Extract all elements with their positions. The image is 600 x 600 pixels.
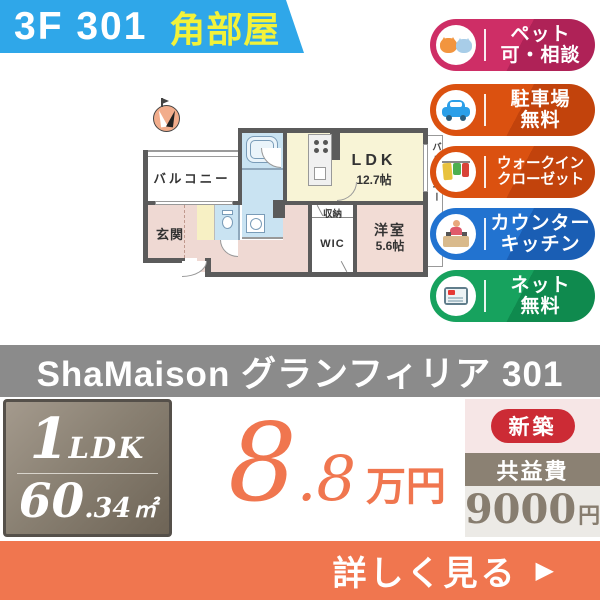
- new-build-band: 新築: [465, 399, 600, 453]
- room-hallway: [197, 240, 312, 272]
- corner-room-label: 角部屋: [169, 1, 280, 53]
- north-compass-icon: [153, 105, 180, 132]
- price-integer: 8: [228, 404, 297, 525]
- area-int: 60: [19, 478, 84, 525]
- car-icon: [436, 90, 476, 130]
- badge-text: カウンターキッチン: [486, 213, 595, 256]
- wall: [207, 272, 428, 277]
- price-decimal: .8: [297, 442, 356, 515]
- layout-row: 1 LDK: [30, 411, 146, 467]
- shoe-cabinet: [197, 205, 215, 240]
- property-title: ShaMaison グランフィリア 301: [37, 346, 564, 397]
- property-title-bar: ShaMaison グランフィリア 301: [0, 345, 600, 397]
- badge-counter-kitchen: カウンターキッチン: [430, 208, 595, 260]
- area-decimal: .34: [84, 493, 131, 524]
- floor-unit-banner: 3F 301 角部屋: [0, 0, 304, 53]
- area-row: 60 .34 ㎡: [19, 478, 156, 525]
- label-ldk-size: 12.7帖: [338, 171, 410, 188]
- wall: [353, 201, 357, 276]
- badge-walk-in-closet: ウォークインクローゼット: [430, 146, 595, 198]
- area-unit: ㎡: [133, 490, 156, 524]
- wall-pillar: [273, 200, 285, 218]
- badge-parking-free: 駐車場無料: [430, 84, 595, 136]
- hanging-clothes-icon: [436, 152, 476, 192]
- rent-price: 8 .8 万円: [212, 404, 462, 536]
- sliding-window: [423, 144, 428, 192]
- layout-number: 1: [30, 411, 69, 467]
- fee-label-band: 共益費: [465, 453, 600, 486]
- wall: [283, 128, 287, 205]
- sliding-window: [155, 201, 233, 205]
- washing-machine-icon: [246, 214, 265, 233]
- layout-type: LDK: [69, 431, 146, 465]
- floor-unit-label: 3F 301: [14, 5, 147, 49]
- label-ldk: LDK: [338, 152, 410, 170]
- dog-cat-icon: [436, 25, 476, 65]
- new-build-badge: 新築: [491, 409, 575, 443]
- badge-pets-ok: ペット可・相談: [430, 19, 595, 71]
- label-wic: WIC: [312, 238, 353, 250]
- stove-burners-icon: [314, 140, 319, 145]
- label-balcony: バルコニー: [148, 168, 236, 187]
- wall: [238, 128, 242, 205]
- label-entrance: 玄関: [148, 224, 192, 243]
- badge-internet-free: ネット無料: [430, 270, 595, 322]
- toilet-icon: [222, 210, 233, 215]
- tablet-icon: [436, 276, 476, 316]
- floorplan: バルコニー 玄関 LDK 12.7帖 収納 WIC 洋室 5.6帖 バルコニー: [140, 102, 445, 282]
- price-unit: 万円: [366, 454, 446, 512]
- counter-kitchen-icon: [436, 214, 476, 254]
- badge-text: ネット無料: [486, 275, 595, 318]
- label-storage: 収納: [312, 206, 353, 220]
- badge-text: ウォークインクローゼット: [486, 156, 595, 188]
- details-button[interactable]: 詳しく見る ▶: [0, 541, 600, 600]
- layout-area-box: 1 LDK 60 .34 ㎡: [3, 399, 172, 537]
- fee-amount: 9000: [465, 486, 576, 534]
- label-bedroom-size: 5.6帖: [359, 237, 421, 254]
- wall: [143, 150, 148, 263]
- arrow-right-icon: ▶: [536, 556, 554, 585]
- fee-value-band: 9000 円: [465, 486, 600, 537]
- toilet-icon: [222, 216, 233, 229]
- wall: [143, 258, 185, 263]
- door-arc-entrance: [182, 261, 207, 277]
- details-button-label: 詳しく見る: [333, 546, 518, 595]
- sink-icon: [314, 167, 326, 180]
- compass-needle-dark: [166, 110, 175, 128]
- fee-unit: 円: [578, 498, 600, 530]
- badge-text: 駐車場無料: [486, 89, 595, 132]
- badge-text: ペット可・相談: [486, 24, 595, 67]
- kitchen-unit-icon: [308, 134, 332, 186]
- balcony-railing: [143, 156, 240, 157]
- compass-flag: [162, 98, 169, 104]
